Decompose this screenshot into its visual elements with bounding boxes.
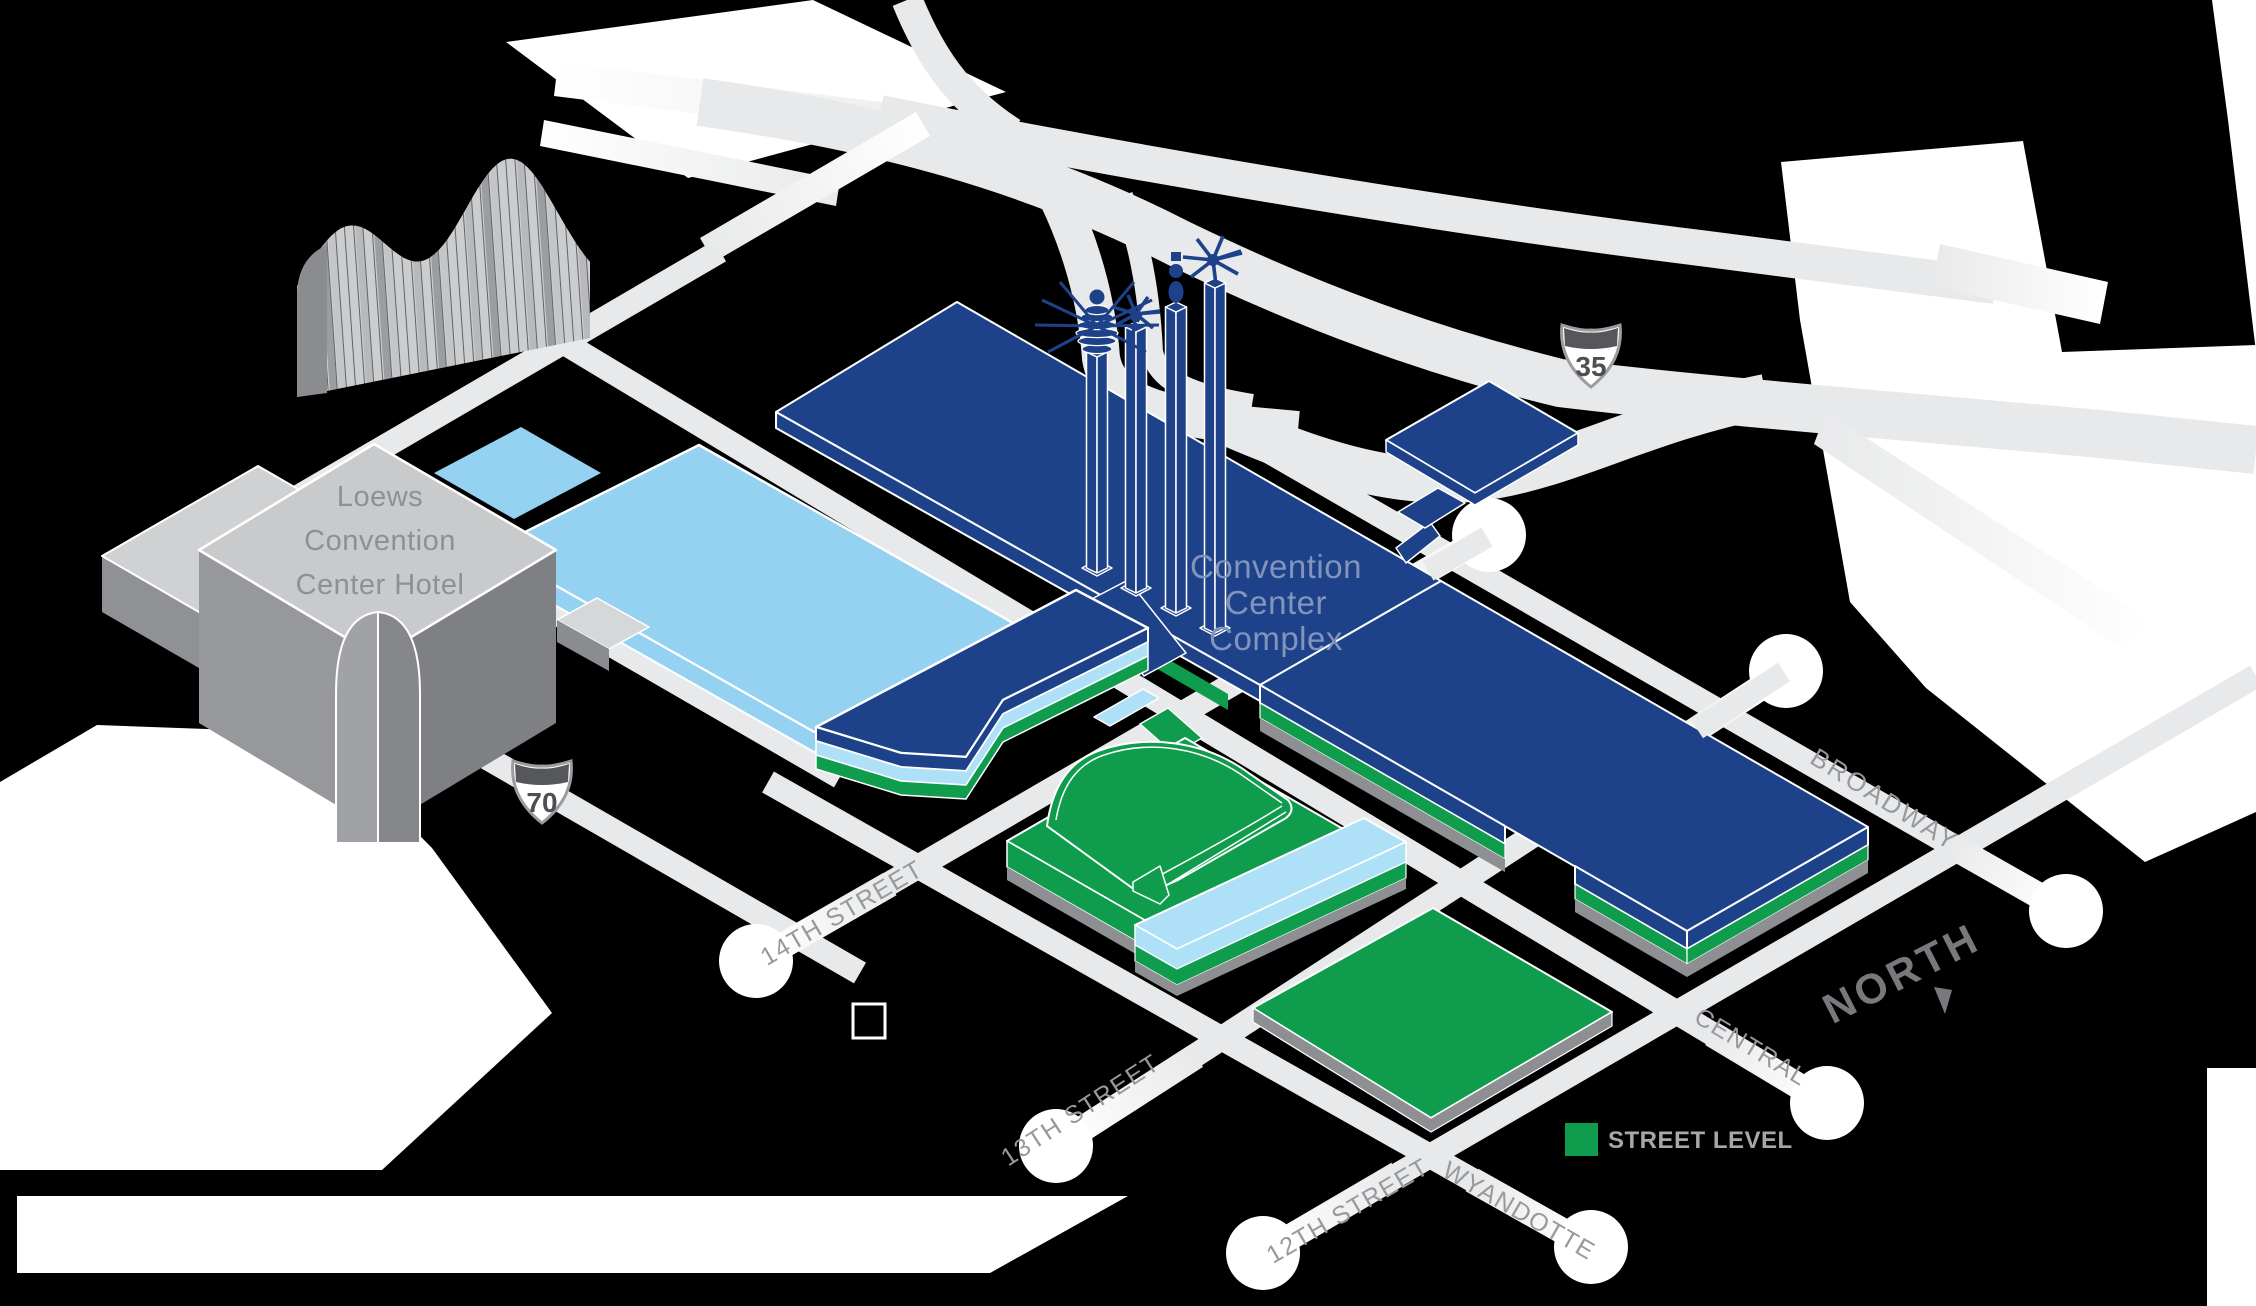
- svg-text:35: 35: [1575, 351, 1606, 382]
- svg-text:STREET LEVEL: STREET LEVEL: [1608, 1127, 1793, 1154]
- svg-text:70: 70: [526, 787, 557, 818]
